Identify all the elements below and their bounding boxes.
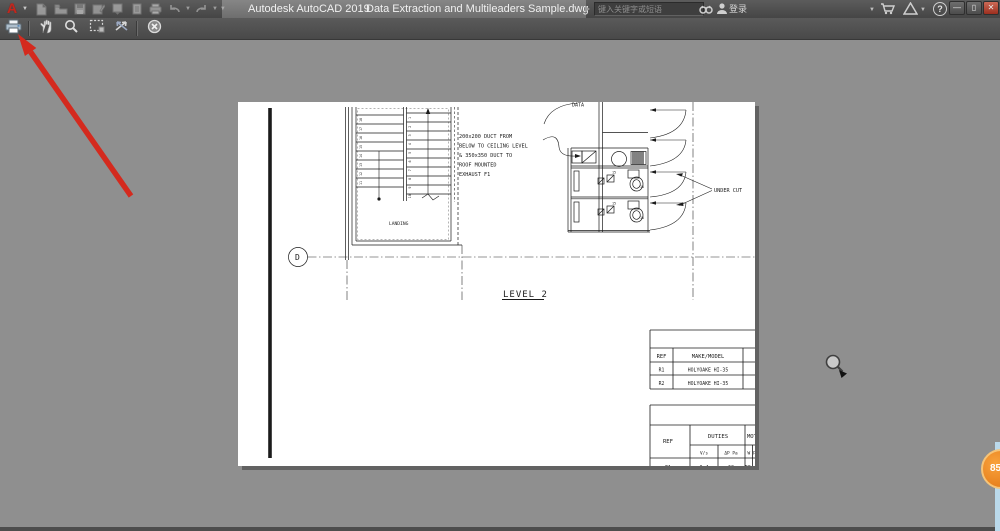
svg-text:7: 7 bbox=[408, 169, 412, 171]
svg-text:60: 60 bbox=[728, 465, 734, 466]
title-bar: A ▼ ▼ ▼ ▼ Autodesk AutoCAD 2019 Data Ext… bbox=[0, 0, 1000, 19]
redo-caret-icon[interactable]: ▼ bbox=[212, 6, 218, 12]
landing-label: LANDING bbox=[389, 221, 409, 227]
search-input[interactable] bbox=[594, 2, 704, 16]
svg-text:5: 5 bbox=[408, 152, 412, 154]
autocad-preview-window: { "titlebar": { "logo": "A", "product": … bbox=[0, 0, 1000, 531]
undo-icon[interactable] bbox=[165, 2, 184, 17]
pan-button[interactable] bbox=[35, 19, 58, 38]
svg-text:0.4: 0.4 bbox=[699, 465, 708, 466]
svg-text:REF: REF bbox=[657, 354, 667, 360]
duties-table: REF DUTIES MOT V/s ΔP Pa W P F1 0.4 60 5… bbox=[663, 434, 755, 466]
svg-text:10: 10 bbox=[408, 194, 412, 198]
svg-text:REF: REF bbox=[663, 439, 674, 445]
export-icon[interactable] bbox=[108, 2, 127, 17]
zoom-window-button[interactable] bbox=[85, 19, 108, 38]
restore-button[interactable]: ▯ bbox=[966, 1, 982, 15]
make-model-table: REF MAKE/MODEL R1 HOLYOAKE HI-35 R2 HOLY… bbox=[657, 354, 729, 387]
duct-note: 200x200 DUCT FROM BELOW TO CEILING LEVEL… bbox=[459, 134, 528, 178]
hand-icon bbox=[39, 19, 54, 39]
svg-text:DUTIES: DUTIES bbox=[708, 434, 728, 440]
keep-me-signed-caret-icon[interactable]: ▼ bbox=[869, 7, 875, 13]
svg-text:13: 13 bbox=[359, 163, 363, 167]
svg-text:200x200 DUCT FROM: 200x200 DUCT FROM bbox=[459, 134, 512, 140]
plot-icon[interactable] bbox=[146, 2, 165, 17]
quick-access-toolbar: ▼ ▼ ▼ bbox=[32, 1, 227, 17]
under-cut-label: UNDER CUT bbox=[714, 188, 742, 194]
document-title: Data Extraction and Multileaders Sample.… bbox=[366, 0, 589, 18]
application-menu-button[interactable]: A bbox=[3, 0, 21, 17]
svg-text:1: 1 bbox=[408, 117, 412, 119]
zoom-original-icon bbox=[114, 19, 130, 38]
svg-text:& 350x350 DUCT TO: & 350x350 DUCT TO bbox=[459, 153, 512, 159]
svg-text:15: 15 bbox=[640, 185, 644, 189]
svg-text:HOLYOAKE HI-35: HOLYOAKE HI-35 bbox=[688, 381, 729, 387]
svg-text:4: 4 bbox=[408, 143, 412, 145]
save-icon[interactable] bbox=[70, 2, 89, 17]
close-button[interactable]: ✕ bbox=[983, 1, 999, 15]
svg-text:EXHAUST F1: EXHAUST F1 bbox=[459, 172, 490, 178]
svg-text:15: 15 bbox=[612, 202, 616, 206]
svg-text:8: 8 bbox=[408, 178, 412, 180]
zoom-original-button[interactable] bbox=[110, 19, 133, 38]
floating-badge[interactable]: 85 bbox=[981, 449, 1000, 489]
svg-text:V/s: V/s bbox=[700, 451, 708, 457]
data-room-label: DATA bbox=[572, 103, 584, 109]
undo-caret-icon[interactable]: ▼ bbox=[185, 6, 191, 12]
stair-tread-numbers-left: 1112131415161718 bbox=[359, 118, 363, 185]
save-as-icon[interactable] bbox=[89, 2, 108, 17]
svg-text:ΔP Pa: ΔP Pa bbox=[724, 451, 738, 457]
minimize-button[interactable]: — bbox=[949, 1, 965, 15]
magnifier-icon bbox=[64, 19, 79, 39]
svg-text:14: 14 bbox=[359, 154, 363, 158]
plot-preview-sheet: LANDING D LEVEL 2 DATA UNDER CUT 200x200… bbox=[238, 102, 755, 466]
svg-text:P: P bbox=[753, 451, 755, 457]
svg-text:BELOW TO CEILING LEVEL: BELOW TO CEILING LEVEL bbox=[459, 144, 528, 150]
svg-text:R1: R1 bbox=[659, 368, 665, 374]
application-menu-caret-icon[interactable]: ▼ bbox=[22, 6, 28, 12]
svg-text:12: 12 bbox=[359, 172, 363, 176]
svg-text:15: 15 bbox=[612, 171, 616, 175]
svg-text:2: 2 bbox=[408, 126, 412, 128]
svg-text:MOT: MOT bbox=[747, 434, 755, 440]
plot-preview-toolbar bbox=[0, 18, 1000, 40]
window-controls: — ▯ ✕ bbox=[948, 1, 999, 15]
svg-text:15: 15 bbox=[359, 145, 363, 149]
zoom-realtime-button[interactable] bbox=[60, 19, 83, 38]
svg-text:17: 17 bbox=[359, 127, 363, 131]
svg-text:ROOF MOUNTED: ROOF MOUNTED bbox=[459, 163, 496, 169]
sign-in-link[interactable]: 登录 bbox=[729, 0, 747, 18]
svg-text:MAKE/MODEL: MAKE/MODEL bbox=[692, 354, 724, 360]
plot-button[interactable] bbox=[2, 19, 25, 38]
svg-text:15: 15 bbox=[640, 216, 644, 220]
zoom-cursor-icon bbox=[823, 352, 851, 382]
svg-text:55: 55 bbox=[745, 465, 751, 466]
redo-icon[interactable] bbox=[192, 2, 211, 17]
svg-text:R2: R2 bbox=[659, 381, 665, 387]
drawing-canvas: LANDING D LEVEL 2 DATA UNDER CUT 200x200… bbox=[238, 102, 755, 466]
svg-text:HOLYOAKE HI-35: HOLYOAKE HI-35 bbox=[688, 368, 729, 374]
svg-text:11: 11 bbox=[359, 181, 363, 185]
printer-icon bbox=[5, 19, 22, 39]
toolbar-separator bbox=[28, 21, 30, 36]
svg-text:18: 18 bbox=[359, 118, 363, 122]
close-preview-button[interactable] bbox=[143, 19, 166, 38]
svg-text:9: 9 bbox=[408, 187, 412, 189]
svg-text:W: W bbox=[747, 451, 750, 457]
exchange-caret-icon[interactable]: ▼ bbox=[920, 7, 926, 13]
svg-text:16: 16 bbox=[359, 136, 363, 140]
toolbar-dropdown-icon[interactable]: ▼ bbox=[220, 6, 226, 12]
new-file-icon[interactable] bbox=[32, 2, 51, 17]
grid-bubble-label: D bbox=[295, 253, 300, 262]
svg-text:3: 3 bbox=[408, 134, 412, 136]
toolbar-separator bbox=[136, 21, 138, 36]
close-circle-icon bbox=[147, 19, 162, 39]
sheet-icon[interactable] bbox=[127, 2, 146, 17]
window-bottom-border bbox=[0, 527, 995, 531]
svg-text:F1: F1 bbox=[665, 465, 671, 466]
zoom-window-icon bbox=[89, 19, 105, 38]
svg-text:6: 6 bbox=[408, 160, 412, 162]
search-expand-icon[interactable] bbox=[585, 6, 590, 12]
level-label: LEVEL 2 bbox=[503, 290, 548, 300]
open-folder-icon[interactable] bbox=[51, 2, 70, 17]
help-icon[interactable]: ? bbox=[933, 2, 947, 16]
app-title: Autodesk AutoCAD 2019 bbox=[248, 0, 370, 18]
